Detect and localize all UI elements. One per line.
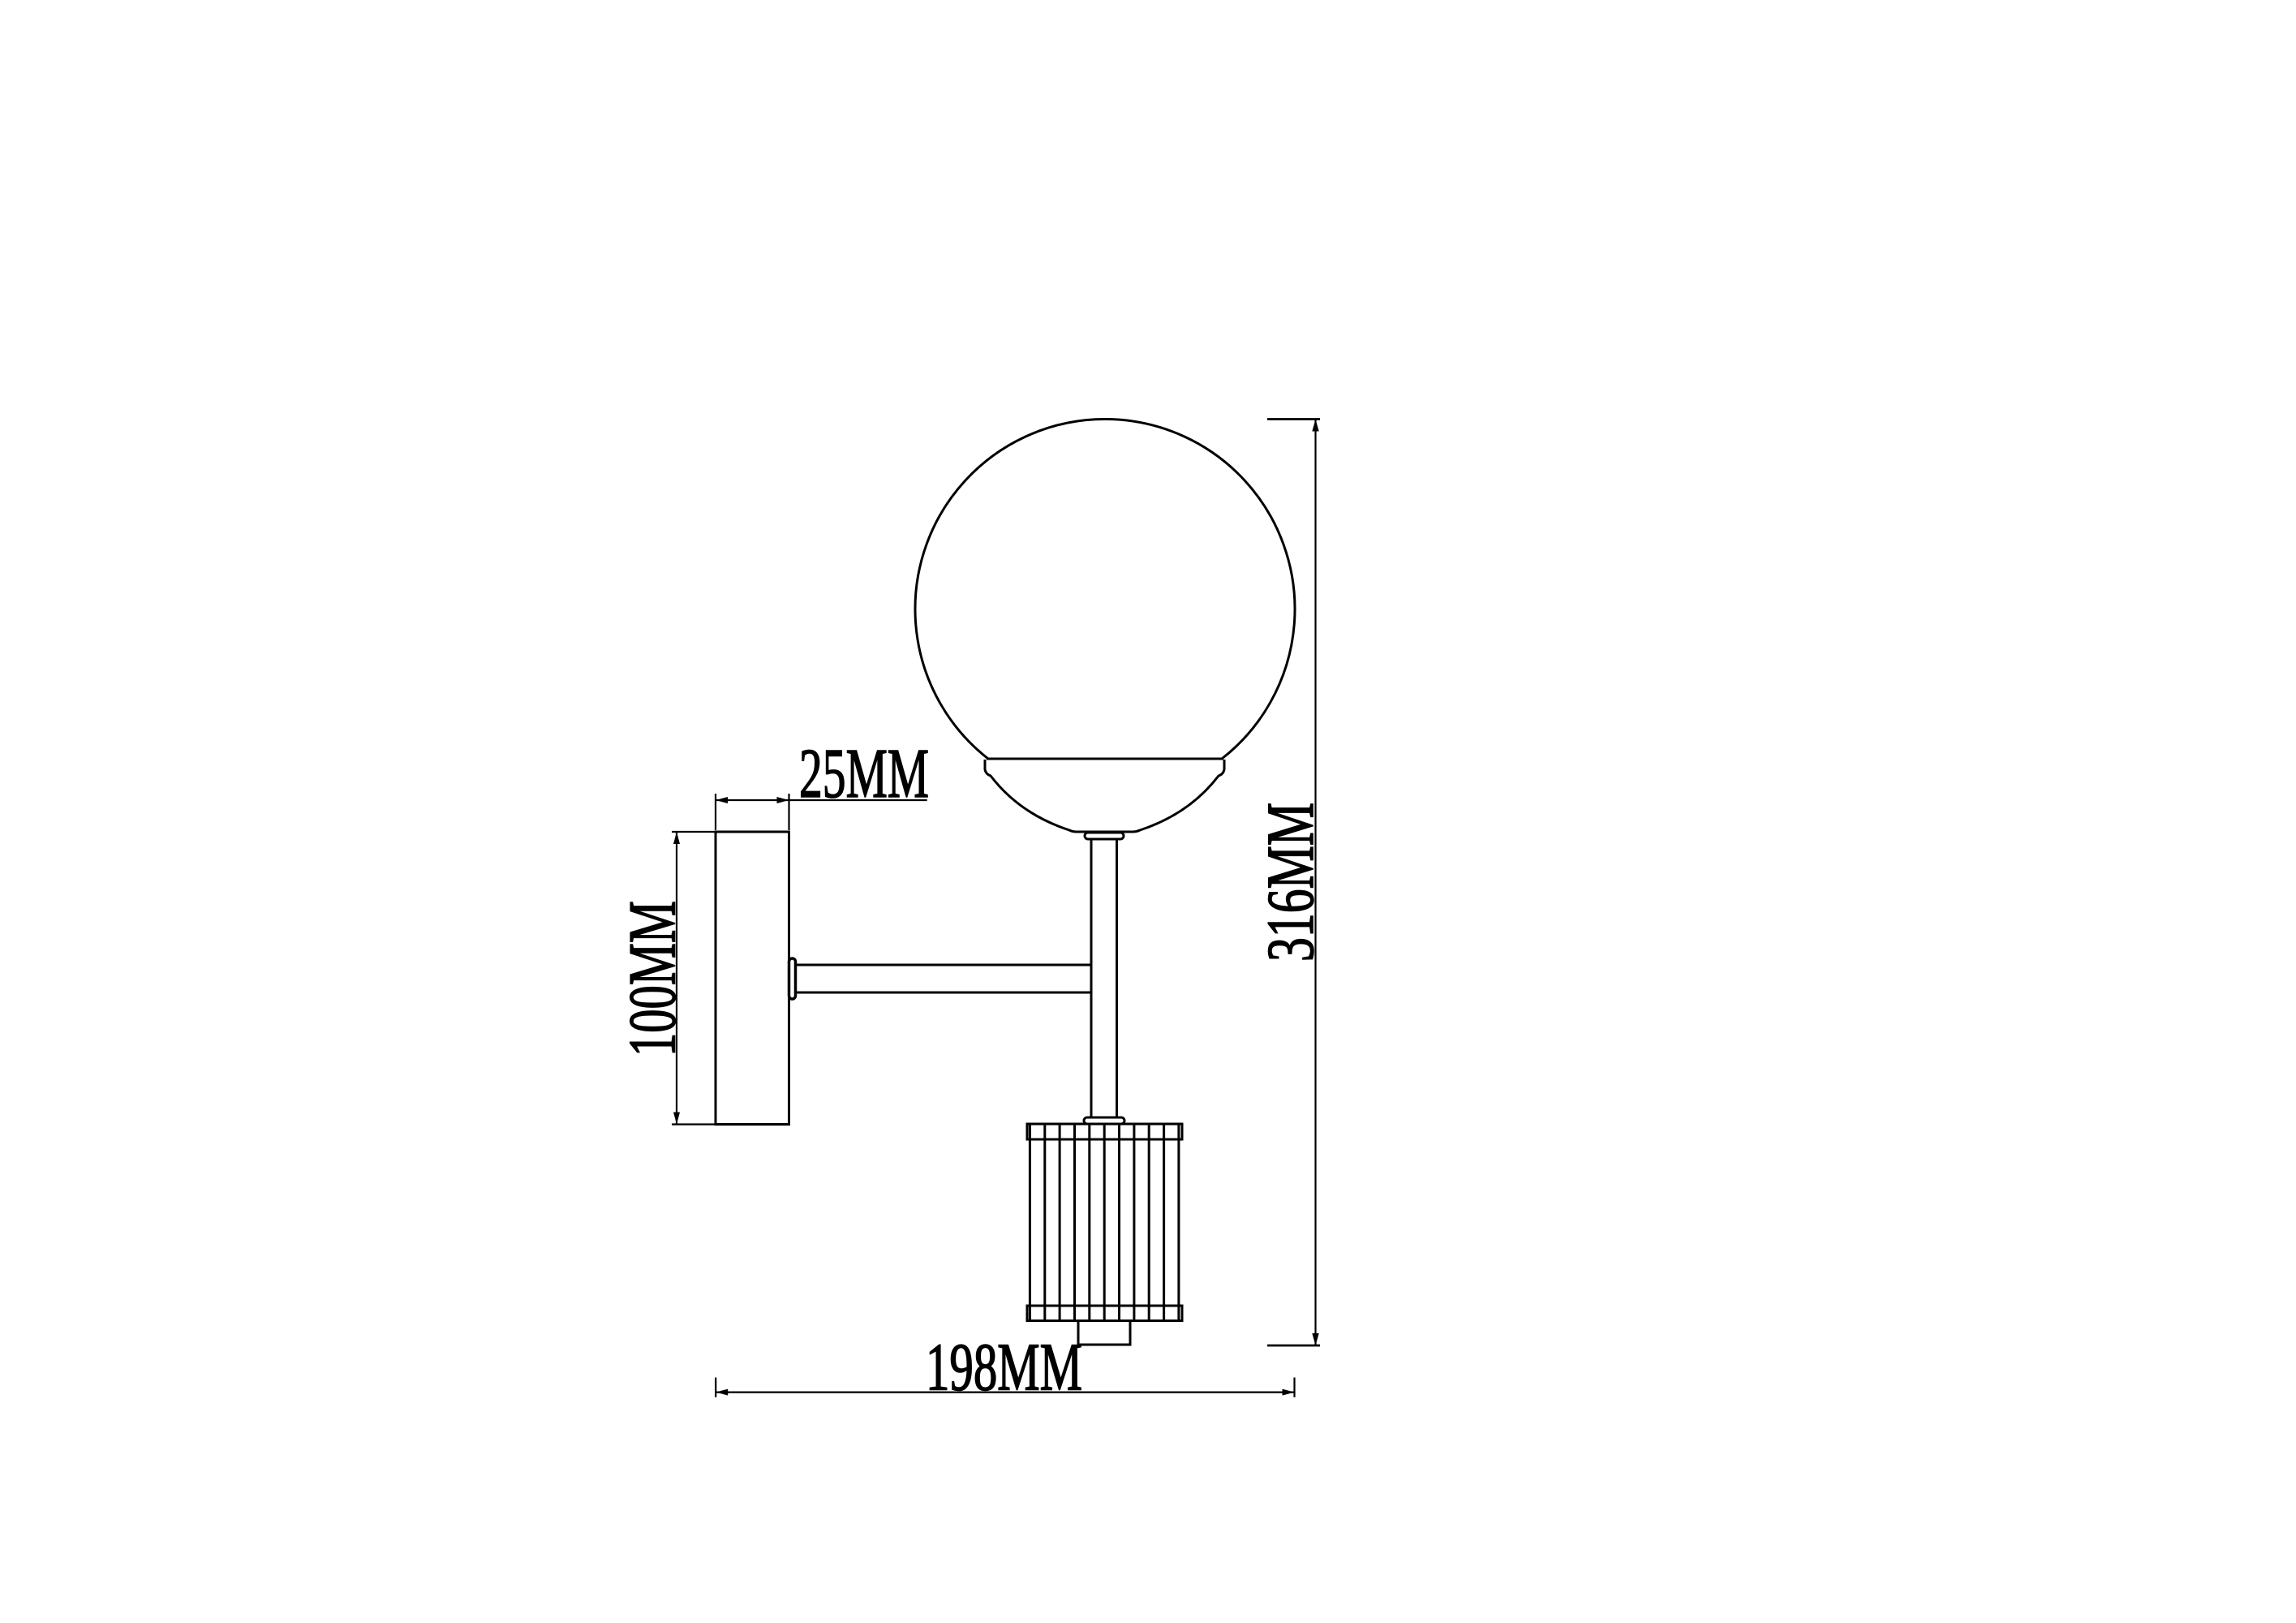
svg-text:198MM: 198MM <box>926 1331 1082 1406</box>
svg-text:25MM: 25MM <box>799 734 929 812</box>
svg-text:100MM: 100MM <box>614 901 689 1057</box>
svg-text:316MM: 316MM <box>1253 803 1327 962</box>
